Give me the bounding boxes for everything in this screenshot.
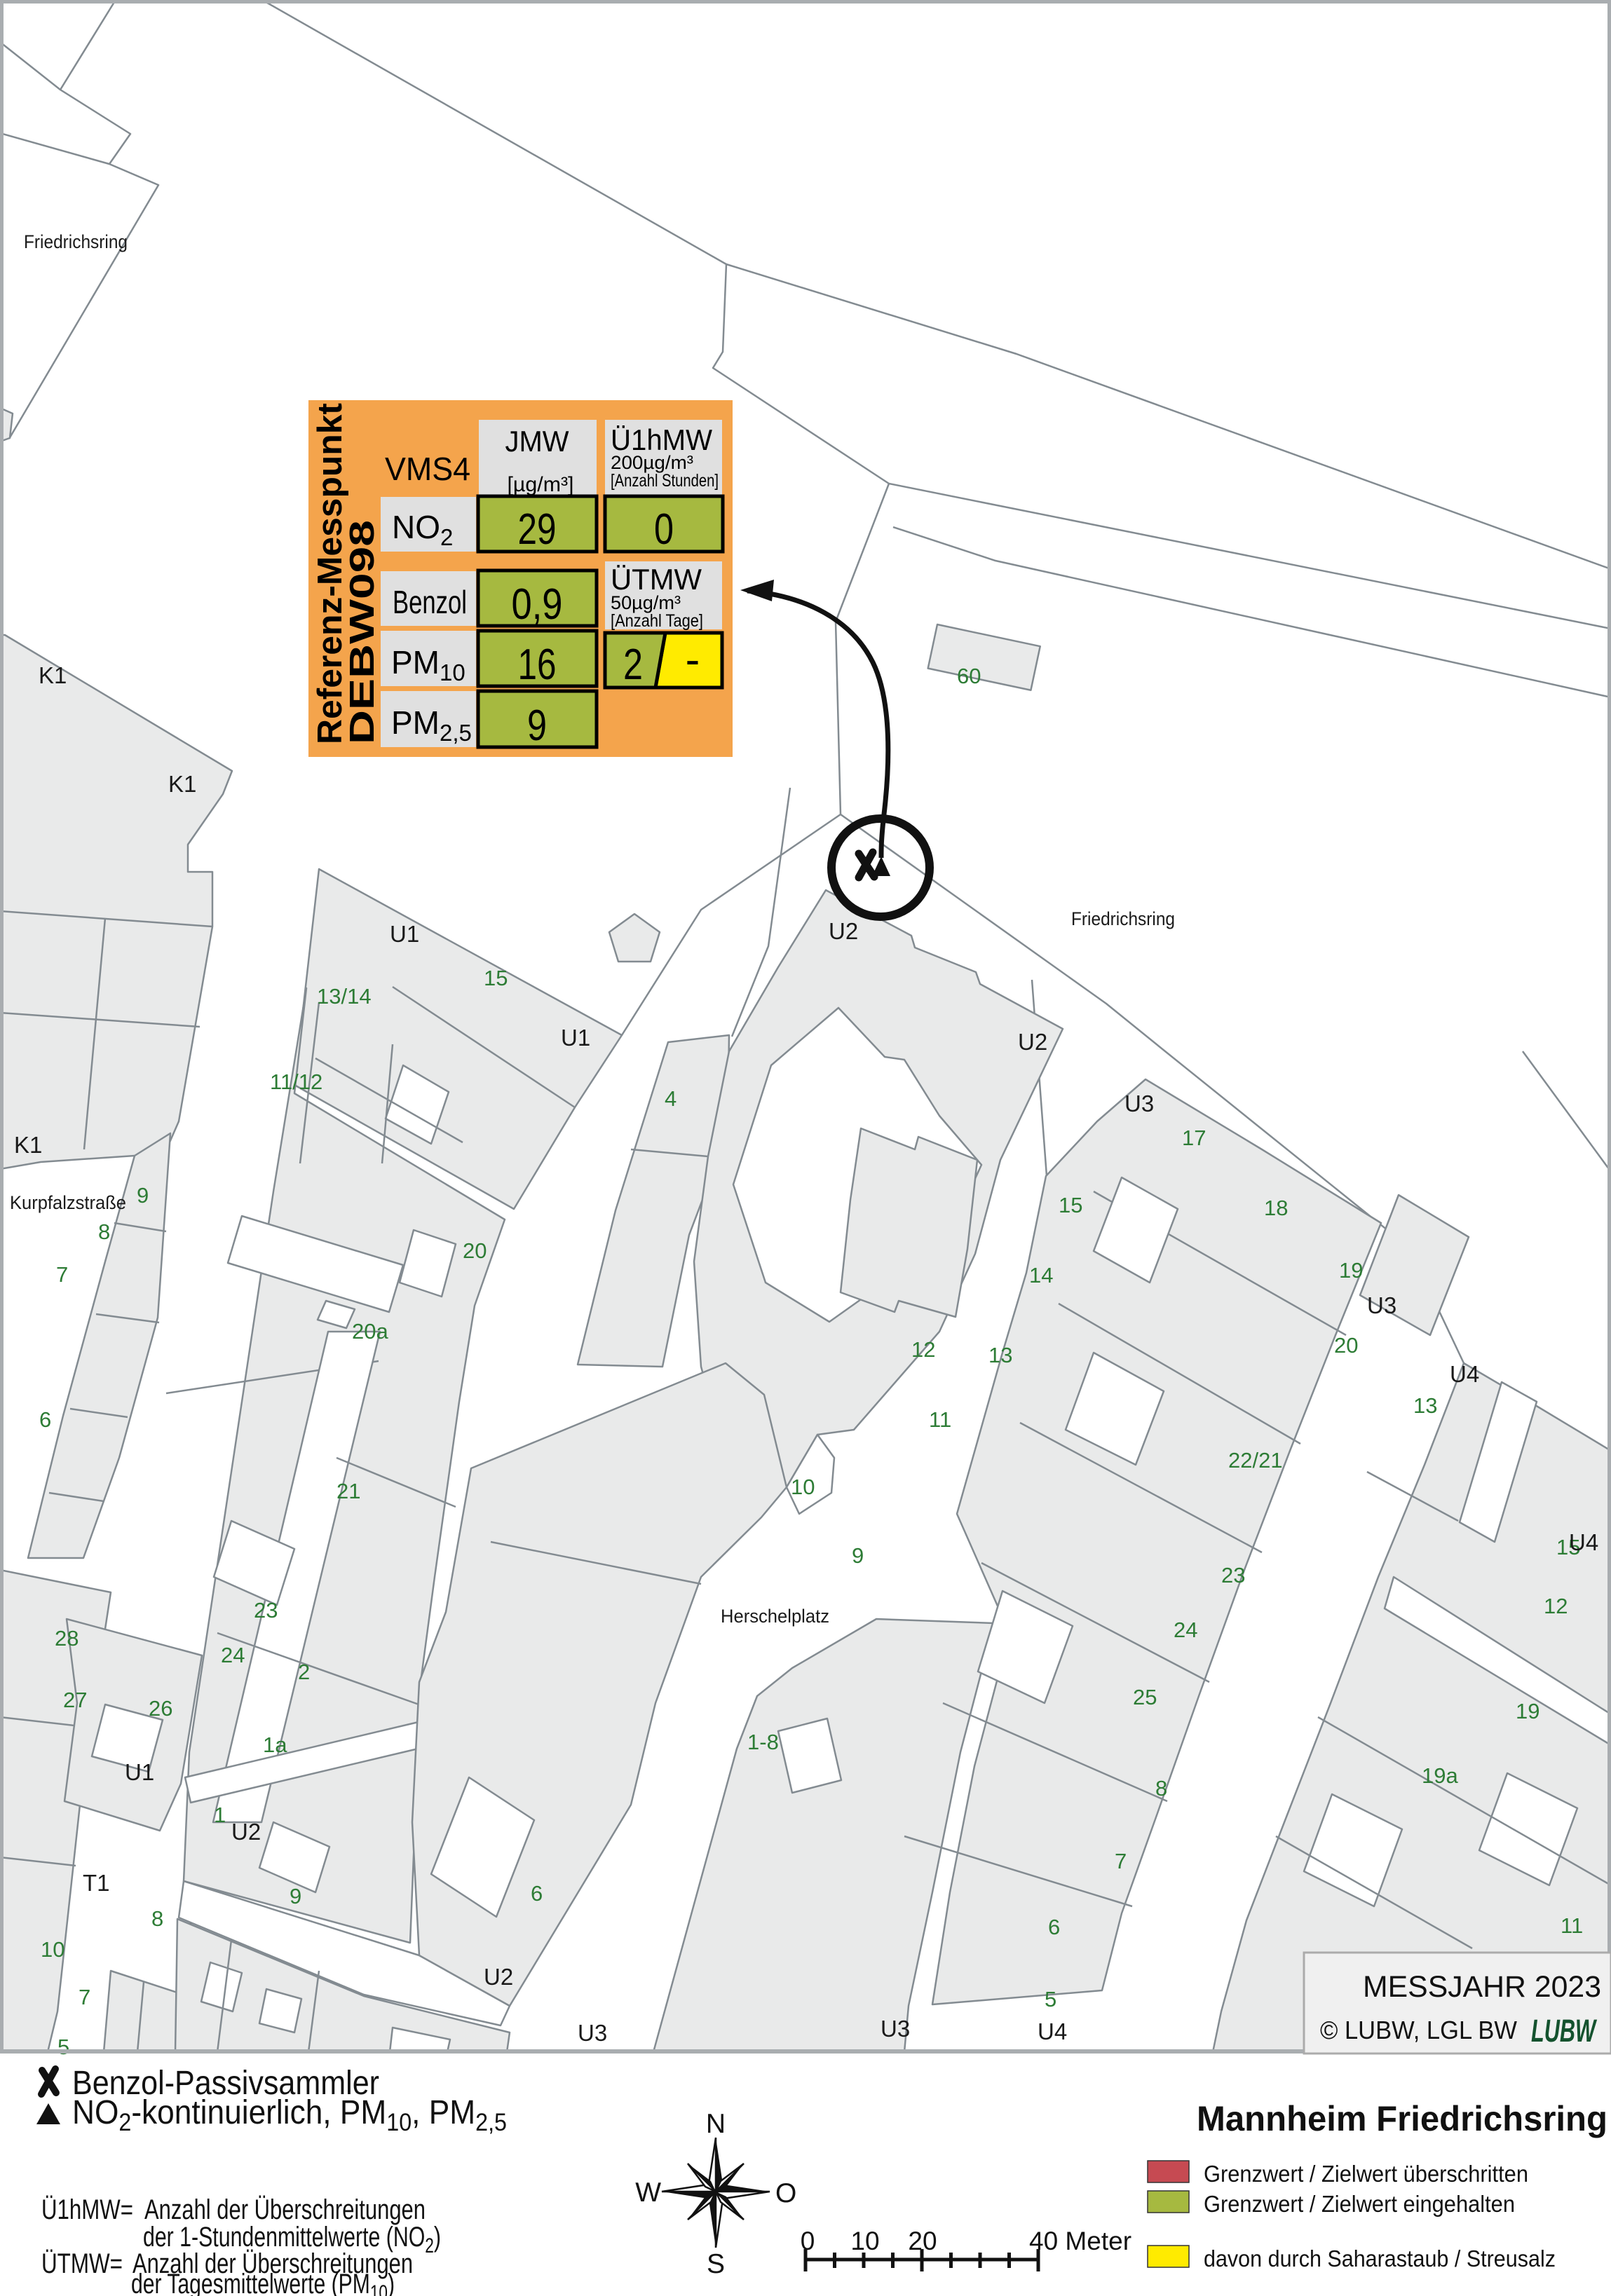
svg-text:2: 2	[298, 1660, 310, 1684]
svg-text:20a: 20a	[352, 1319, 388, 1344]
svg-text:U3: U3	[1367, 1292, 1396, 1318]
svg-text:23: 23	[254, 1598, 278, 1622]
svg-text:DEBW098: DEBW098	[344, 520, 381, 744]
svg-text:Herschelplatz: Herschelplatz	[721, 1606, 829, 1627]
svg-text:LUBW: LUBW	[1531, 2013, 1597, 2049]
svg-text:2: 2	[623, 641, 643, 689]
svg-text:16: 16	[518, 641, 557, 689]
svg-text:MESSJAHR 2023: MESSJAHR 2023	[1363, 1970, 1601, 2004]
svg-text:25: 25	[1133, 1685, 1157, 1709]
svg-text:-: -	[686, 636, 700, 684]
svg-text:13: 13	[988, 1343, 1012, 1367]
svg-text:0: 0	[801, 2227, 815, 2255]
svg-text:5: 5	[57, 2035, 69, 2059]
svg-text:Grenzwert / Zielwert überschri: Grenzwert / Zielwert überschritten	[1204, 2161, 1528, 2187]
svg-text:ÜTMW=: ÜTMW=	[41, 2248, 123, 2279]
svg-text:S: S	[707, 2249, 725, 2279]
svg-text:U3: U3	[1124, 1091, 1154, 1116]
svg-text:15: 15	[484, 966, 508, 990]
svg-text:davon durch Saharastaub / Stre: davon durch Saharastaub / Streusalz	[1204, 2246, 1556, 2271]
svg-text:19: 19	[1339, 1258, 1363, 1283]
svg-text:U4: U4	[1569, 1529, 1598, 1555]
svg-text:6: 6	[531, 1881, 543, 1906]
svg-text:13: 13	[1413, 1393, 1437, 1418]
svg-text:W: W	[635, 2178, 661, 2208]
svg-text:U2: U2	[1018, 1029, 1047, 1055]
svg-text:10: 10	[791, 1475, 815, 1499]
svg-text:8: 8	[1155, 1776, 1167, 1800]
svg-text:28: 28	[55, 1626, 79, 1651]
svg-text:8: 8	[151, 1906, 163, 1931]
svg-text:1: 1	[214, 1803, 226, 1827]
svg-text:13/14: 13/14	[317, 984, 372, 1009]
svg-text:7: 7	[1115, 1849, 1127, 1873]
svg-text:[µg/m³]: [µg/m³]	[508, 473, 574, 496]
svg-text:17: 17	[1182, 1126, 1206, 1150]
svg-text:14: 14	[1029, 1263, 1053, 1287]
svg-text:7: 7	[79, 1985, 90, 2009]
svg-text:200µg/m³: 200µg/m³	[611, 452, 693, 473]
svg-text:Grenzwert / Zielwert eingehalt: Grenzwert / Zielwert eingehalten	[1204, 2191, 1515, 2217]
svg-text:U4: U4	[1450, 1361, 1479, 1387]
svg-text:U2: U2	[231, 1819, 261, 1845]
svg-text:50µg/m³: 50µg/m³	[611, 592, 681, 613]
svg-text:27: 27	[63, 1688, 87, 1712]
svg-text:NO2-kontinuierlich, PM10, PM2,: NO2-kontinuierlich, PM10, PM2,5	[72, 2094, 507, 2136]
svg-text:© LUBW, LGL BW: © LUBW, LGL BW	[1320, 2016, 1517, 2044]
svg-text:[Anzahl Stunden]: [Anzahl Stunden]	[611, 471, 719, 491]
svg-text:20: 20	[908, 2227, 937, 2255]
svg-text:5: 5	[1045, 1987, 1056, 2011]
svg-text:10: 10	[41, 1937, 64, 1962]
svg-text:U3: U3	[881, 2016, 910, 2042]
svg-text:9: 9	[290, 1884, 301, 1908]
svg-text:0: 0	[654, 505, 674, 554]
svg-text:JMW: JMW	[505, 425, 569, 458]
svg-text:11: 11	[929, 1407, 951, 1432]
svg-text:8: 8	[98, 1219, 110, 1244]
svg-text:1-8: 1-8	[747, 1730, 779, 1754]
svg-text:11/12: 11/12	[270, 1070, 322, 1094]
svg-text:60: 60	[957, 664, 981, 688]
svg-text:9: 9	[527, 702, 547, 750]
svg-text:12: 12	[1544, 1594, 1568, 1618]
svg-text:Ü1hMW=: Ü1hMW=	[41, 2194, 133, 2225]
svg-text:U2: U2	[829, 918, 858, 944]
svg-text:O: O	[775, 2178, 796, 2208]
svg-text:40 Meter: 40 Meter	[1029, 2227, 1131, 2255]
svg-text:Benzol: Benzol	[393, 584, 467, 620]
svg-text:7: 7	[56, 1262, 68, 1287]
svg-text:20: 20	[463, 1238, 487, 1263]
svg-text:VMS4: VMS4	[385, 451, 470, 487]
svg-text:26: 26	[149, 1696, 172, 1721]
svg-text:18: 18	[1264, 1196, 1288, 1220]
svg-text:9: 9	[852, 1543, 864, 1568]
svg-text:11: 11	[1561, 1913, 1583, 1938]
svg-text:19a: 19a	[1422, 1763, 1458, 1788]
svg-text:Mannheim Friedrichsring: Mannheim Friedrichsring	[1197, 2099, 1607, 2138]
svg-text:[Anzahl Tage]: [Anzahl Tage]	[611, 611, 703, 631]
svg-text:K1: K1	[39, 662, 67, 688]
svg-text:19: 19	[1516, 1699, 1539, 1723]
svg-text:Friedrichsring: Friedrichsring	[1071, 908, 1175, 929]
svg-text:U4: U4	[1038, 2018, 1067, 2044]
svg-text:24: 24	[221, 1643, 245, 1667]
svg-text:15: 15	[1059, 1193, 1082, 1217]
svg-text:der Tagesmittelwerte (PM10): der Tagesmittelwerte (PM10)	[131, 2269, 395, 2296]
svg-text:ÜTMW: ÜTMW	[611, 563, 702, 596]
svg-text:K1: K1	[14, 1132, 42, 1158]
svg-text:9: 9	[137, 1183, 149, 1208]
svg-text:6: 6	[1048, 1915, 1060, 1939]
svg-text:12: 12	[911, 1337, 935, 1362]
svg-text:21: 21	[337, 1479, 360, 1503]
svg-text:U1: U1	[390, 921, 419, 947]
svg-text:0,9: 0,9	[512, 580, 563, 629]
svg-text:U1: U1	[561, 1025, 590, 1051]
svg-text:29: 29	[518, 505, 557, 554]
svg-text:Kurpfalzstraße: Kurpfalzstraße	[10, 1192, 126, 1213]
svg-text:Ü1hMW: Ü1hMW	[611, 423, 712, 456]
svg-text:1a: 1a	[263, 1733, 287, 1757]
svg-text:20: 20	[1334, 1333, 1358, 1358]
svg-text:4: 4	[665, 1086, 677, 1111]
svg-text:24: 24	[1174, 1618, 1197, 1642]
svg-text:U1: U1	[125, 1759, 154, 1785]
svg-text:T1: T1	[83, 1870, 110, 1896]
svg-text:22/21: 22/21	[1228, 1448, 1283, 1472]
svg-text:N: N	[706, 2109, 726, 2139]
svg-text:6: 6	[39, 1407, 51, 1432]
svg-text:23: 23	[1221, 1563, 1245, 1587]
svg-text:Friedrichsring: Friedrichsring	[24, 231, 128, 252]
svg-text:U2: U2	[484, 1964, 513, 1990]
svg-text:Anzahl der Überschreitungen: Anzahl der Überschreitungen	[144, 2194, 426, 2225]
svg-text:K1: K1	[168, 771, 196, 797]
svg-text:10: 10	[850, 2227, 879, 2255]
svg-text:U3: U3	[578, 2020, 607, 2046]
